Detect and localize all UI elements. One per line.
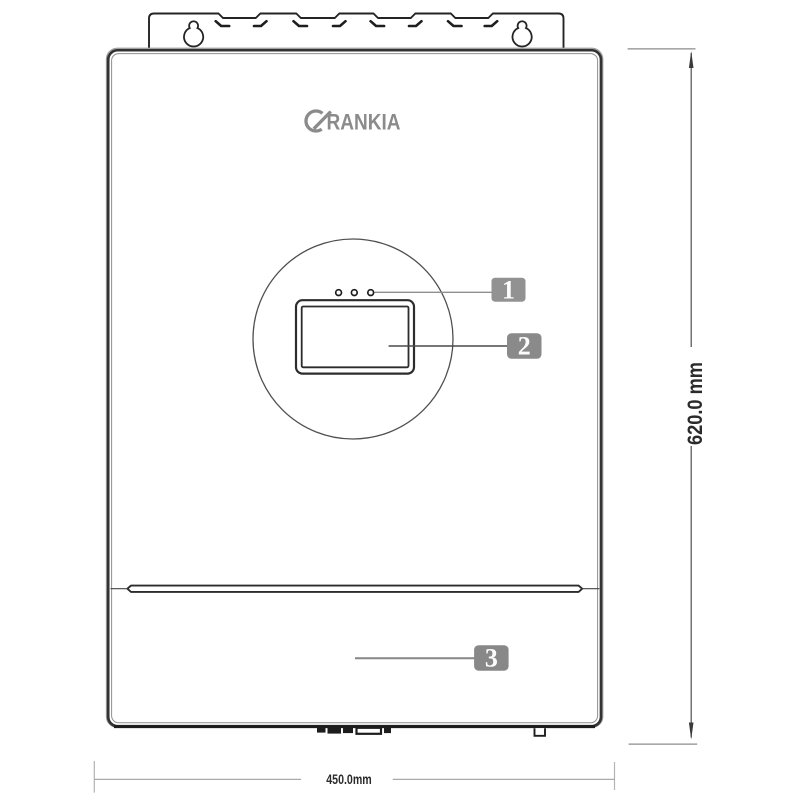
svg-text:RANKIA: RANKIA	[327, 109, 401, 134]
svg-text:3: 3	[485, 644, 498, 673]
svg-text:620.0 mm: 620.0 mm	[684, 362, 707, 445]
svg-text:1: 1	[502, 275, 515, 304]
svg-text:450.0mm: 450.0mm	[326, 772, 372, 787]
svg-text:2: 2	[518, 332, 531, 361]
